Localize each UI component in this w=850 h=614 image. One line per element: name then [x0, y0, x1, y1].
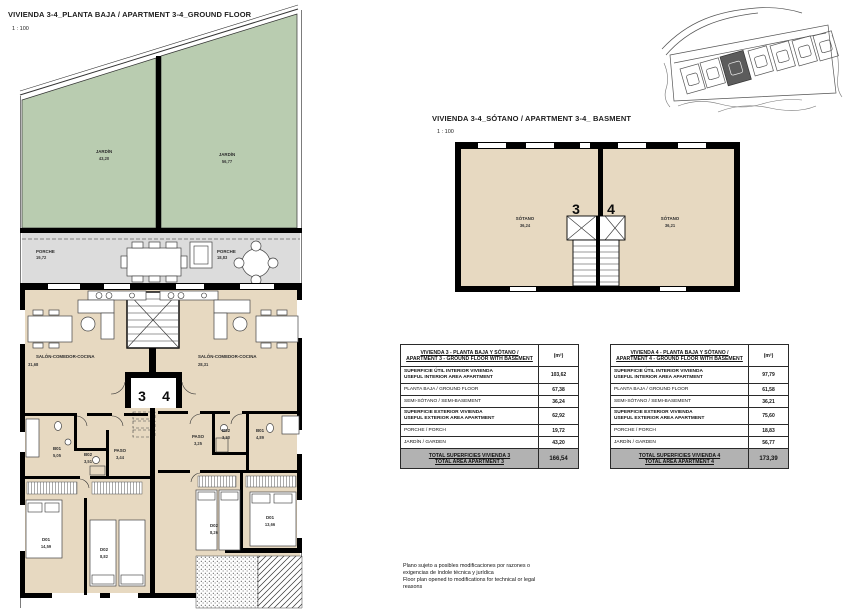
plan-sheet: VIVIENDA 3-4_PLANTA BAJA / APARTMENT 3-4… [0, 0, 850, 614]
basement-unit-number-right: 4 [607, 201, 615, 217]
b01-left-area: 5,05 [53, 453, 62, 458]
paso-right-area: 3,25 [194, 441, 203, 446]
d02-left-label: D02 [100, 547, 109, 552]
facade-wall [20, 283, 302, 290]
garden-right-region [161, 14, 297, 228]
living-left-area: 31,68 [28, 362, 39, 367]
ground-floor-plan: JARDÍN 43,20 JARDÍN 56,77 PORCHE 19,72 P… [0, 0, 330, 614]
b02-left-label: B02 [84, 452, 93, 457]
disclaimer-line: reasons [403, 584, 535, 591]
d02-right-area: 8,26 [210, 530, 219, 535]
site-roads [662, 8, 802, 55]
b01-right-area: 4,89 [256, 435, 265, 440]
table-row: PORCHE / PORCH18,83 [611, 425, 789, 437]
garden-left-area: 43,20 [99, 156, 110, 161]
table4-unit-cell: (m²) [749, 345, 789, 367]
table-header-row: VIVIENDA 4 - PLANTA BAJA Y SÓTANO / APAR… [611, 345, 789, 367]
sotano-left-area: 36,24 [520, 223, 531, 228]
living-right-area: 28,31 [198, 362, 209, 367]
table-row: JARDÍN / GARDEN43,20 [401, 437, 579, 449]
porch-right-label: PORCHE [217, 249, 236, 254]
disclaimer-note: Plano sujeto a posibles modificaciones p… [403, 563, 535, 591]
garden-left-label: JARDÍN [96, 149, 112, 154]
living-right-label: SALÓN-COMEDOR-COCINA [198, 354, 257, 359]
d01-right-label: D01 [266, 515, 275, 520]
table-header-row: VIVIENDA 3 - PLANTA BAJA Y SÓTANO / APAR… [401, 345, 579, 367]
b01-left-label: B01 [53, 446, 62, 451]
table-row: SUPERFICIE ÚTIL INTERIOR VIVIENDAUSEFUL … [401, 367, 579, 384]
porch-dining-table [121, 242, 187, 282]
table-total-row: TOTAL SUPERFICIES VIVIENDA 3TOTAL AREA A… [401, 449, 579, 469]
site-plots [680, 31, 838, 94]
party-wall-lower [150, 408, 155, 598]
garden-divider-wall [156, 56, 161, 228]
table-row: SEMI-SÓTANO / SEMI-BASEMENT36,24 [401, 396, 579, 408]
living-left-label: SALÓN-COMEDOR-COCINA [36, 354, 95, 359]
b01-right-label: B01 [256, 428, 265, 433]
basement-title: VIVIENDA 3-4_SÓTANO / APARTMENT 3-4_ BAS… [432, 114, 631, 123]
table-row: SEMI-SÓTANO / SEMI-BASEMENT36,21 [611, 396, 789, 408]
d01-left-label: D01 [42, 537, 51, 542]
terrace-hatch-region [196, 556, 302, 608]
table-row: SUPERFICIE ÚTIL INTERIOR VIVIENDAUSEFUL … [611, 367, 789, 384]
table-row: PORCHE / PORCH19,72 [401, 425, 579, 437]
b02-left-area: 3,51 [84, 459, 93, 464]
garden-right-area: 56,77 [222, 159, 233, 164]
garden-left-region [22, 58, 156, 228]
d01-right-area: 13,66 [265, 522, 276, 527]
disclaimer-line: Floor plan opened to modifications for t… [403, 577, 535, 584]
table3-header-cell: VIVIENDA 3 - PLANTA BAJA Y SÓTANO / APAR… [401, 345, 539, 367]
table-total-row: TOTAL SUPERFICIES VIVIENDA 4TOTAL AREA A… [611, 449, 789, 469]
table-row: PLANTA BAJA / GROUND FLOOR67,38 [401, 384, 579, 396]
porch-right-area: 18,83 [217, 255, 228, 260]
b02-right-label: B02 [222, 428, 231, 433]
garden-porch-wall [20, 228, 302, 233]
site-location-map [660, 5, 845, 115]
table4-header-cell: VIVIENDA 4 - PLANTA BAJA Y SÓTANO / APAR… [611, 345, 749, 367]
d02-right-label: D02 [210, 523, 219, 528]
bed-double-left [26, 500, 62, 558]
stairwell [127, 292, 179, 348]
paso-right-label: PASO [192, 434, 205, 439]
basement-plan: 3 4 SÓTANO 36,24 SÓTANO 36,21 [430, 130, 750, 305]
basement-unit-number-left: 3 [572, 201, 580, 217]
table-row: SUPERFICIE EXTERIOR VIVIENDAUSEFUL EXTER… [611, 408, 789, 425]
b02-right-area: 3,30 [222, 435, 231, 440]
basement-stairs [567, 216, 625, 286]
porch-left-area: 19,72 [36, 255, 47, 260]
sotano-left-label: SÓTANO [516, 216, 535, 221]
areas-table-vivienda3: VIVIENDA 3 - PLANTA BAJA Y SÓTANO / APAR… [400, 344, 579, 469]
d02-left-area: 8,82 [100, 554, 109, 559]
party-wall-upper [149, 348, 156, 372]
areas-table-vivienda4: VIVIENDA 4 - PLANTA BAJA Y SÓTANO / APAR… [610, 344, 789, 469]
garden-right-label: JARDÍN [219, 152, 235, 157]
porch-left-label: PORCHE [36, 249, 55, 254]
d01-left-area: 14,59 [41, 544, 52, 549]
sotano-right-area: 36,21 [665, 223, 676, 228]
unit-number-left: 3 [138, 388, 146, 404]
table3-unit-cell: (m²) [539, 345, 579, 367]
site-boundary [670, 25, 836, 101]
paso-left-area: 3,44 [116, 455, 125, 460]
disclaimer-line: exigencias de índole técnica y jurídica [403, 570, 535, 577]
table-row: PLANTA BAJA / GROUND FLOOR61,58 [611, 384, 789, 396]
paso-left-label: PASO [114, 448, 127, 453]
table-row: SUPERFICIE EXTERIOR VIVIENDAUSEFUL EXTER… [401, 408, 579, 425]
unit-number-right: 4 [162, 388, 170, 404]
table-row: JARDÍN / GARDEN56,77 [611, 437, 789, 449]
sotano-right-label: SÓTANO [661, 216, 680, 221]
disclaimer-line: Plano sujeto a posibles modificaciones p… [403, 563, 535, 570]
